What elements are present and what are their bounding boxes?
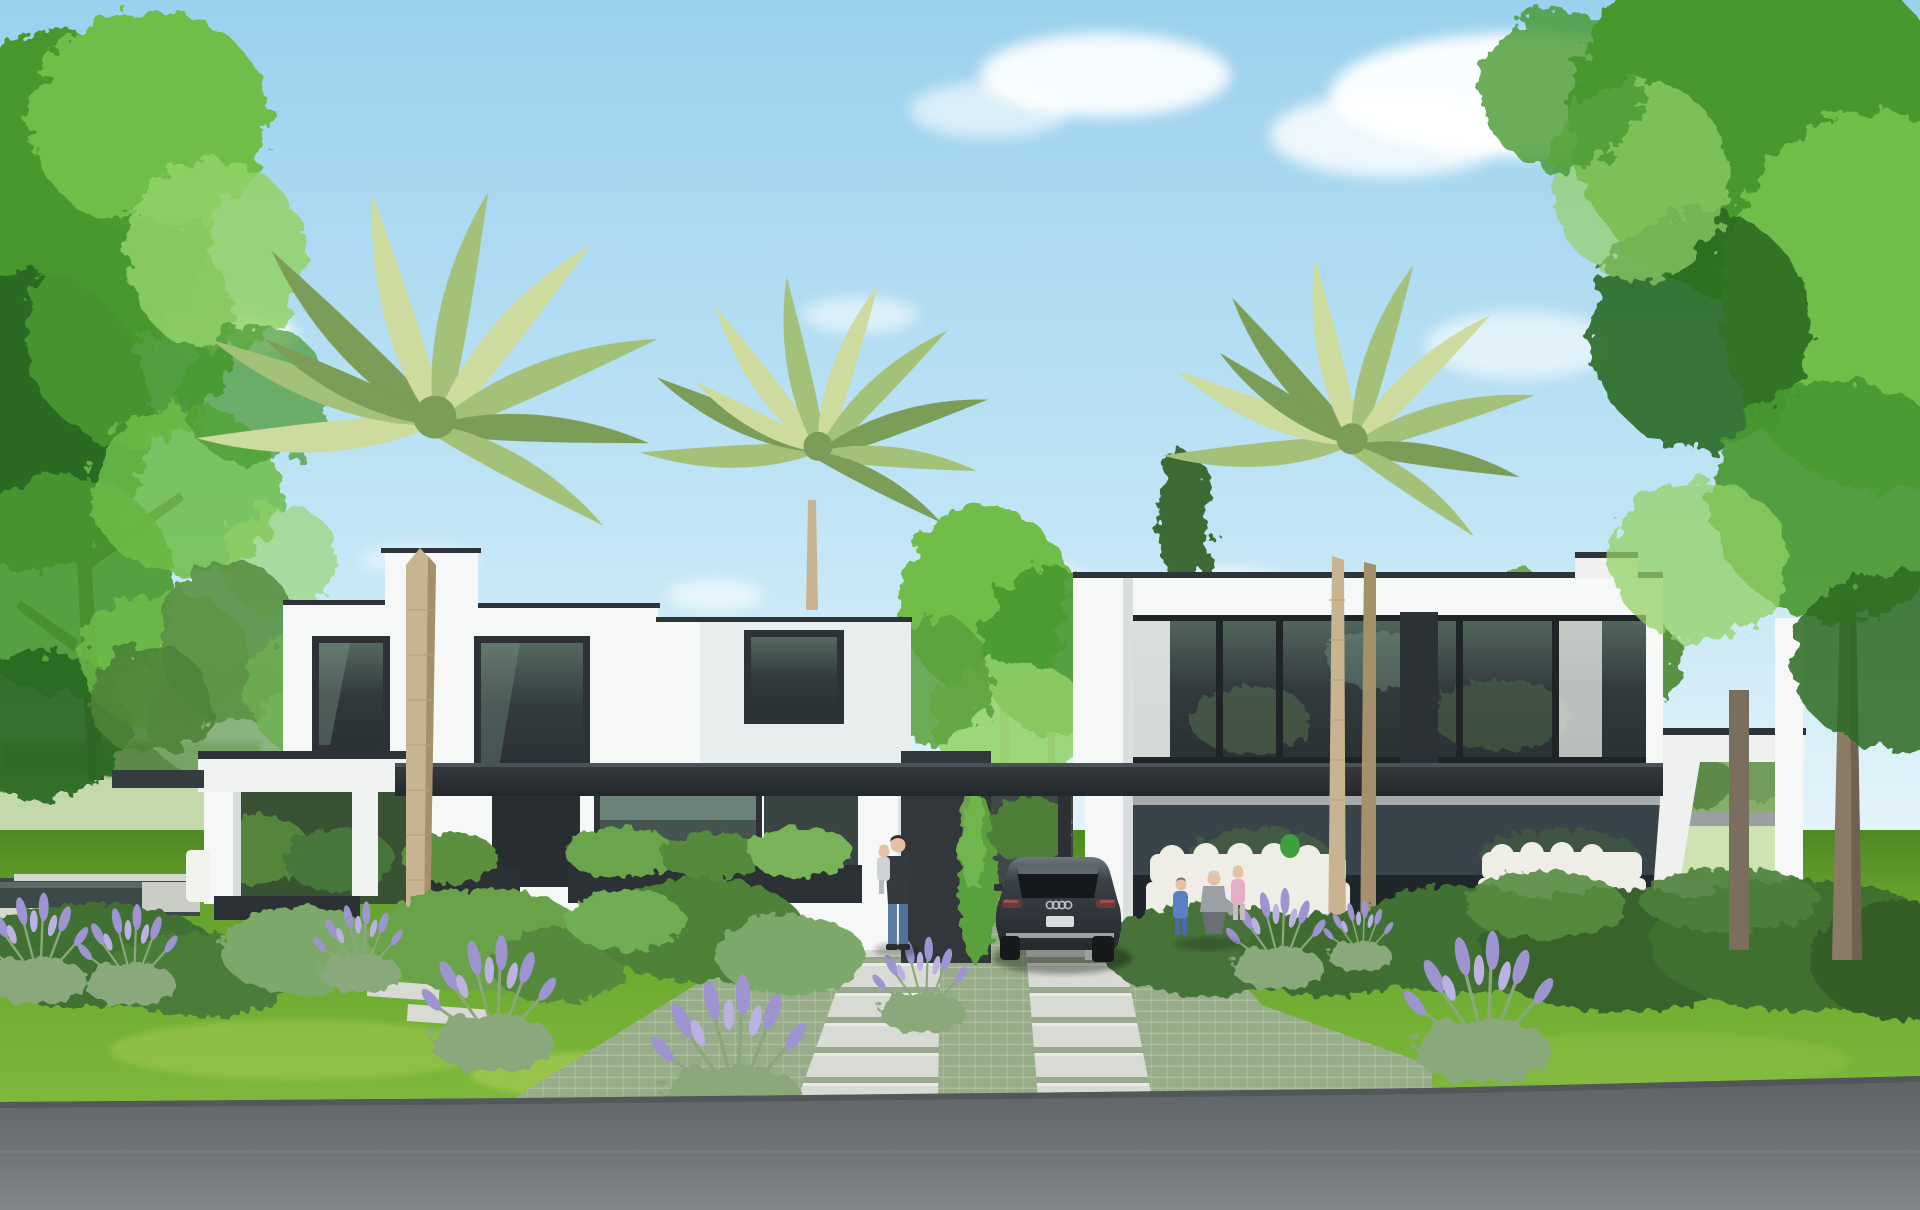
rendering-canvas (0, 0, 1920, 1210)
canopy-fascia (395, 763, 1663, 796)
upper-window-3 (744, 630, 844, 724)
upper-window-1 (312, 636, 390, 752)
child-pink (1231, 866, 1245, 921)
license-plate (1046, 916, 1074, 927)
white-lounger (186, 850, 210, 902)
upper-glass-band (1122, 615, 1646, 763)
upper-window-2 (474, 636, 590, 778)
side-canopy-slab (112, 770, 204, 788)
car-wheel-right (1092, 936, 1114, 962)
scene-svg (0, 0, 1920, 1210)
car-wheel-left (1000, 936, 1020, 960)
palm-trunk (806, 500, 818, 610)
porch-column-2 (352, 792, 378, 896)
